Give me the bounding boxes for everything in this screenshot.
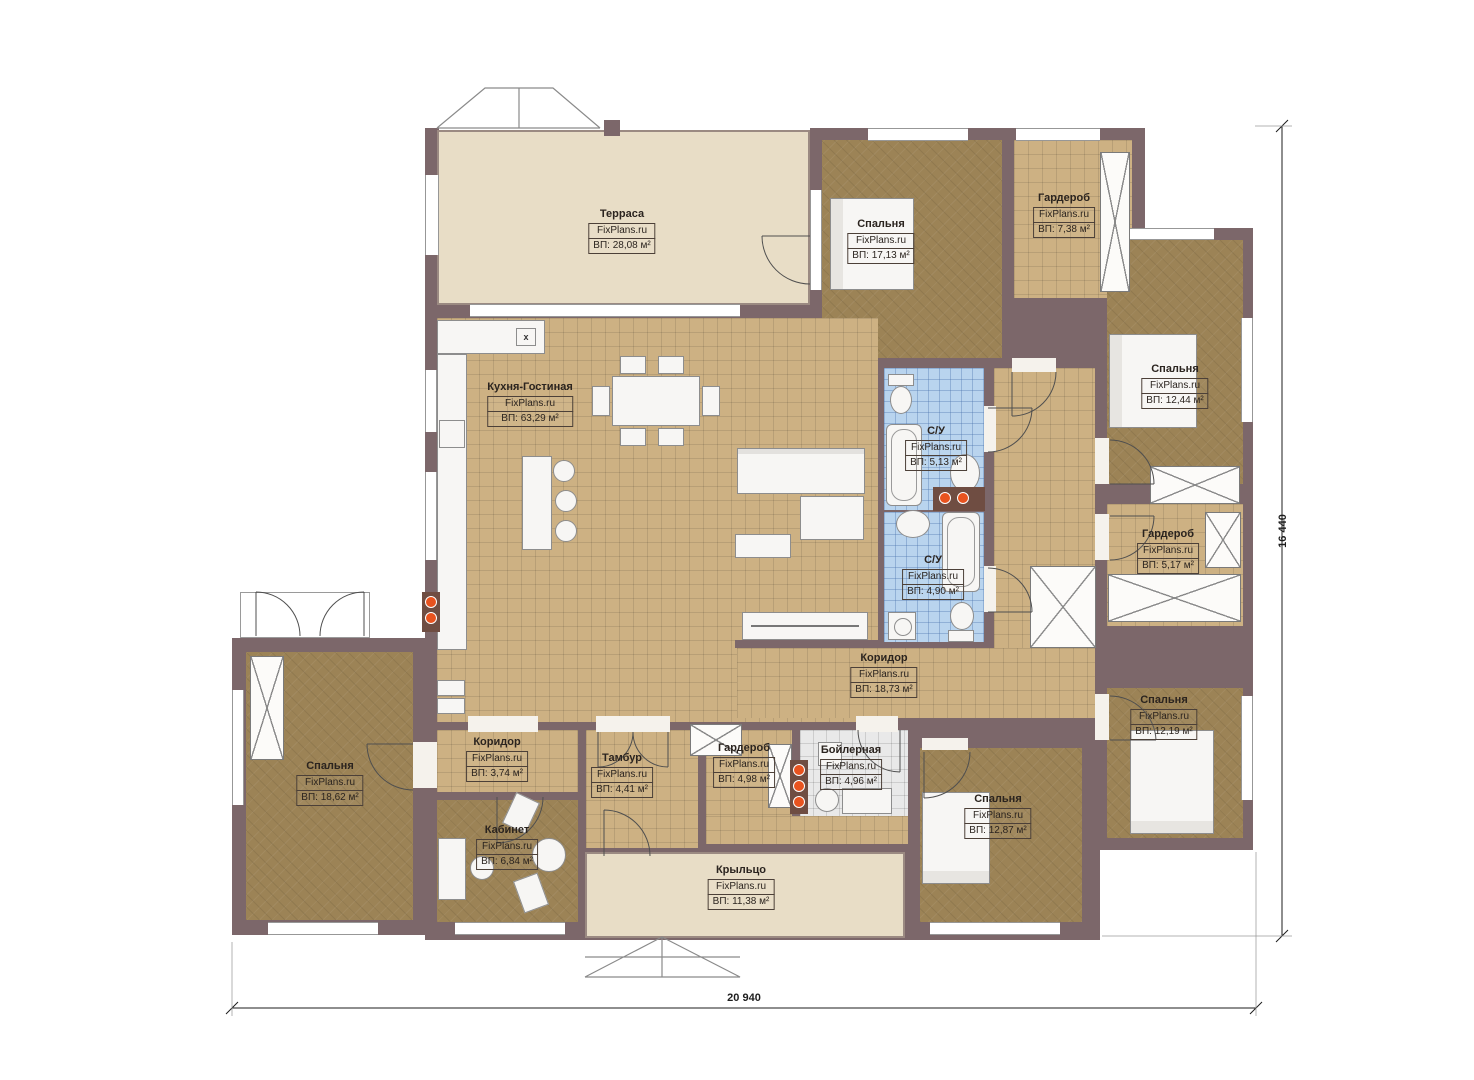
window-wardrobe-top	[1016, 128, 1100, 141]
tv-bench	[742, 612, 868, 640]
watermark: FixPlans.ru	[1141, 378, 1208, 394]
room-area: ВП: 7,38 м²	[1033, 222, 1095, 238]
watermark: FixPlans.ru	[713, 757, 775, 773]
room-name: Бойлерная	[820, 744, 882, 757]
boiler-unit	[842, 788, 892, 814]
terrace-post	[604, 120, 620, 136]
window-terrace-left	[425, 175, 439, 255]
closet-wardrobe-right-b	[1205, 512, 1241, 568]
sofa	[737, 448, 865, 494]
room-name: Спальня	[296, 760, 363, 773]
watermark: FixPlans.ru	[847, 233, 914, 249]
room-name: Гардероб	[713, 742, 775, 755]
label-boiler: Бойлерная FixPlans.ru ВП: 4,96 м²	[820, 744, 882, 790]
door-opening-bedroom-right-2	[1095, 694, 1109, 740]
coffee-table	[735, 534, 791, 558]
label-wardrobe-right: Гардероб FixPlans.ru ВП: 5,17 м²	[1137, 528, 1199, 574]
toilet-2-bowl	[950, 602, 974, 630]
room-area: ВП: 18,62 м²	[296, 790, 363, 806]
kitchen-hob: x	[516, 328, 536, 346]
kitchen-counter-left	[437, 354, 467, 650]
watermark: FixPlans.ru	[905, 440, 967, 456]
label-bedroom-right-1: Спальня FixPlans.ru ВП: 12,44 м²	[1141, 363, 1208, 409]
room-area: ВП: 4,90 м²	[902, 584, 964, 600]
watermark: FixPlans.ru	[964, 808, 1031, 824]
door-opening-bath-2	[984, 566, 996, 612]
room-name: С/У	[905, 425, 967, 438]
bar-stool-2	[555, 490, 577, 512]
sofa-chaise	[800, 496, 864, 540]
door-opening-bedroom-bottom	[922, 738, 968, 750]
label-wardrobe-top: Гардероб FixPlans.ru ВП: 7,38 м²	[1033, 192, 1095, 238]
closet-bedroom-left	[250, 656, 284, 760]
room-name: С/У	[902, 554, 964, 567]
boiler-dot-2	[793, 780, 805, 792]
dimension-right: 16 440	[1277, 514, 1289, 548]
room-name: Спальня	[964, 793, 1031, 806]
label-corridor-small: Коридор FixPlans.ru ВП: 3,74 м²	[466, 736, 528, 782]
door-opening-wardrobe-top	[1012, 358, 1056, 372]
window-bedroom-right-1	[1241, 318, 1253, 422]
hob-label: x	[523, 332, 528, 342]
washing-machine	[888, 612, 916, 640]
room-area: ВП: 5,17 м²	[1137, 558, 1199, 574]
window-bedroom-top	[868, 128, 968, 141]
dining-chair-6	[702, 386, 720, 416]
door-opening-bedroom-left	[413, 742, 437, 788]
room-area: ВП: 12,44 м²	[1141, 393, 1208, 409]
window-bedroom-left-bottom	[268, 922, 378, 935]
boiler-dot-3	[793, 796, 805, 808]
floor-plan: x	[0, 0, 1474, 1080]
watermark: FixPlans.ru	[588, 223, 655, 239]
closet-corridor	[1030, 566, 1096, 648]
wall-tv-partition	[735, 640, 878, 648]
room-area: ВП: 3,74 м²	[466, 766, 528, 782]
room-area: ВП: 17,13 м²	[847, 248, 914, 264]
room-area: ВП: 4,96 м²	[820, 774, 882, 790]
watermark: FixPlans.ru	[476, 839, 538, 855]
room-name: Крыльцо	[708, 864, 775, 877]
dining-chair-2	[658, 356, 684, 374]
label-wardrobe-bottom: Гардероб FixPlans.ru ВП: 4,98 м²	[713, 742, 775, 788]
room-name: Кабинет	[476, 824, 538, 837]
kitchen-island	[522, 456, 552, 550]
door-opening-bedroom-right-1	[1095, 438, 1109, 484]
closet-wardrobe-right-c	[1108, 574, 1241, 622]
room-name: Коридор	[466, 736, 528, 749]
dining-chair-3	[620, 428, 646, 446]
window-office-bottom	[455, 922, 565, 935]
window-bedroom-right-2	[1241, 696, 1253, 800]
kitchen-appliance-2	[437, 698, 465, 714]
watermark: FixPlans.ru	[1033, 207, 1095, 223]
room-area: ВП: 28,08 м²	[588, 238, 655, 254]
watermark: FixPlans.ru	[466, 751, 528, 767]
room-name: Гардероб	[1033, 192, 1095, 205]
watermark: FixPlans.ru	[296, 775, 363, 791]
watermark: FixPlans.ru	[708, 879, 775, 895]
roof-gable-porch	[585, 937, 740, 977]
room-area: ВП: 4,98 м²	[713, 772, 775, 788]
room-area: ВП: 12,19 м²	[1130, 724, 1197, 740]
dimension-bottom: 20 940	[727, 992, 761, 1004]
toilet-2-tank	[948, 630, 974, 642]
watermark: FixPlans.ru	[902, 569, 964, 585]
closet-wardrobe-right-a	[1150, 466, 1240, 504]
roof-gable-top	[437, 88, 600, 128]
door-opening-boiler	[856, 716, 898, 732]
window-kitchen-left-1	[425, 370, 437, 432]
watermark: FixPlans.ru	[1130, 709, 1197, 725]
kitchen-appliance-1	[437, 680, 465, 696]
label-bedroom-right-2: Спальня FixPlans.ru ВП: 12,19 м²	[1130, 694, 1197, 740]
room-area: ВП: 63,29 м²	[487, 411, 573, 427]
window-bedroom-bottom	[930, 922, 1060, 935]
dining-chair-5	[592, 386, 610, 416]
room-name: Спальня	[847, 218, 914, 231]
closet-wardrobe-top	[1100, 152, 1130, 292]
dining-chair-4	[658, 428, 684, 446]
heater-dot-1	[939, 492, 951, 504]
label-porch: Крыльцо FixPlans.ru ВП: 11,38 м²	[708, 864, 775, 910]
room-name: Спальня	[1130, 694, 1197, 707]
boiler-tank	[815, 788, 839, 812]
bar-stool-1	[553, 460, 575, 482]
kitchen-dot-2	[425, 612, 437, 624]
label-corridor-main: Коридор FixPlans.ru ВП: 18,73 м²	[850, 652, 917, 698]
room-passage-strip	[706, 816, 908, 844]
room-area: ВП: 6,84 м²	[476, 854, 538, 870]
window-bedroom-left	[232, 690, 244, 805]
room-name: Спальня	[1141, 363, 1208, 376]
room-area: ВП: 5,13 м²	[905, 455, 967, 471]
room-name: Терраса	[588, 208, 655, 221]
dining-table	[612, 376, 700, 426]
room-name: Тамбур	[591, 752, 653, 765]
room-area: ВП: 4,41 м²	[591, 782, 653, 798]
tv-line	[751, 625, 859, 627]
label-bedroom-top: Спальня FixPlans.ru ВП: 17,13 м²	[847, 218, 914, 264]
label-bath-1: С/У FixPlans.ru ВП: 5,13 м²	[905, 425, 967, 471]
office-desk	[438, 838, 466, 900]
label-tambour: Тамбур FixPlans.ru ВП: 4,41 м²	[591, 752, 653, 798]
label-bedroom-bottom: Спальня FixPlans.ru ВП: 12,87 м²	[964, 793, 1031, 839]
window-terrace-slider	[470, 304, 740, 317]
door-opening-tambour-double	[596, 716, 670, 732]
door-opening-kitchen-corridor	[468, 716, 538, 732]
window-bedroom-right-1-top	[1128, 228, 1214, 240]
room-area: ВП: 11,38 м²	[708, 894, 775, 910]
bar-stool-3	[555, 520, 577, 542]
toilet-1-tank	[888, 374, 914, 386]
room-area: ВП: 12,87 м²	[964, 823, 1031, 839]
kitchen-dot-1	[425, 596, 437, 608]
washing-machine-drum	[894, 618, 912, 636]
room-area: ВП: 18,73 м²	[850, 682, 917, 698]
watermark: FixPlans.ru	[1137, 543, 1199, 559]
label-bedroom-left: Спальня FixPlans.ru ВП: 18,62 м²	[296, 760, 363, 806]
watermark: FixPlans.ru	[487, 396, 573, 412]
kitchen-fridge	[439, 420, 465, 448]
watermark: FixPlans.ru	[820, 759, 882, 775]
door-opening-bath-1	[984, 406, 996, 452]
room-name: Кухня-Гостиная	[487, 381, 573, 394]
door-opening-wardrobe-right	[1095, 514, 1109, 560]
window-terrace-bedroom	[810, 190, 822, 290]
heater-dot-2	[957, 492, 969, 504]
watermark: FixPlans.ru	[591, 767, 653, 783]
window-kitchen-left-2	[425, 472, 437, 560]
entry-stoop	[240, 592, 370, 638]
label-terrace: Терраса FixPlans.ru ВП: 28,08 м²	[588, 208, 655, 254]
room-name: Гардероб	[1137, 528, 1199, 541]
room-name: Коридор	[850, 652, 917, 665]
sink-2	[896, 510, 930, 538]
bed-bedroom-right-2	[1130, 730, 1214, 834]
label-office: Кабинет FixPlans.ru ВП: 6,84 м²	[476, 824, 538, 870]
toilet-1-bowl	[890, 386, 912, 414]
dining-chair-1	[620, 356, 646, 374]
boiler-dot-1	[793, 764, 805, 776]
label-bath-2: С/У FixPlans.ru ВП: 4,90 м²	[902, 554, 964, 600]
watermark: FixPlans.ru	[850, 667, 917, 683]
label-kitchen-living: Кухня-Гостиная FixPlans.ru ВП: 63,29 м²	[487, 381, 573, 427]
